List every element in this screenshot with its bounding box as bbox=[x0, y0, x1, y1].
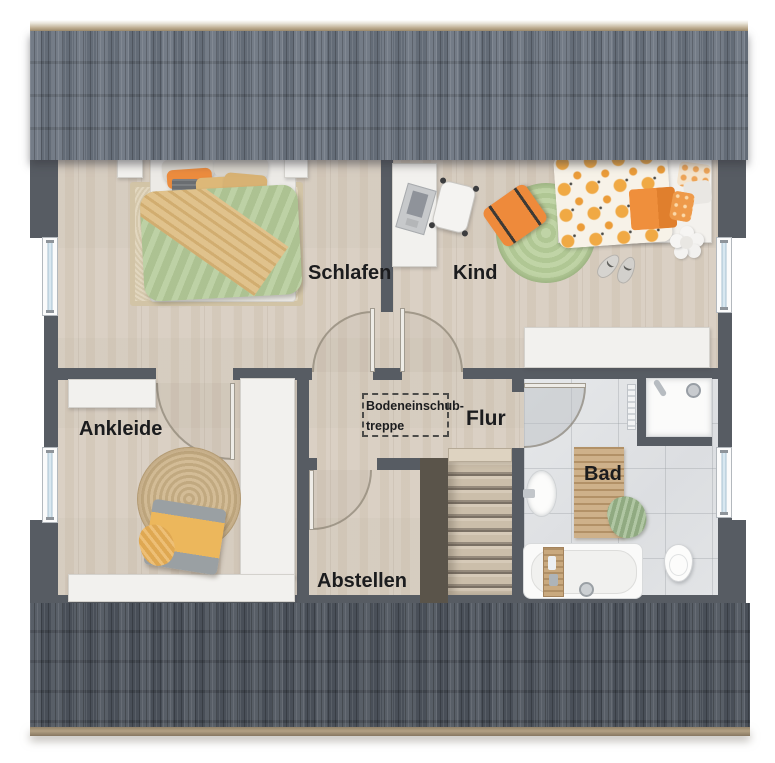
toilet-seat-line bbox=[669, 554, 688, 576]
window-tick bbox=[720, 450, 728, 453]
window-glass bbox=[722, 451, 727, 514]
door-leaf-kind bbox=[400, 308, 405, 372]
laptop-screen bbox=[406, 190, 428, 217]
attic-stairs-annotation: Bodeneinschub- treppe bbox=[366, 396, 464, 436]
flower-stool bbox=[670, 226, 704, 259]
exterior-wall-right bbox=[718, 158, 732, 603]
window-tick bbox=[46, 517, 54, 520]
flower-center bbox=[680, 236, 693, 249]
floorplan-upper-floor: Schlafen Kind Ankleide Flur Abstellen Ba… bbox=[0, 0, 775, 763]
window-schlafen bbox=[42, 237, 58, 316]
window-bad bbox=[716, 447, 732, 518]
sink-faucet bbox=[523, 489, 535, 498]
bathtub bbox=[523, 543, 643, 599]
door-leaf-schlafen bbox=[370, 308, 375, 372]
room-label-flur: Flur bbox=[466, 407, 506, 431]
roof-upper bbox=[30, 31, 748, 160]
wardrobe-top bbox=[68, 379, 156, 408]
shower-wall-bottom bbox=[637, 437, 712, 446]
roof-ridge-top bbox=[30, 20, 748, 31]
ankleide-right-wall bbox=[297, 380, 309, 603]
window-glass bbox=[722, 241, 727, 309]
nightstand-right bbox=[284, 157, 308, 178]
exterior-wall-left bbox=[44, 158, 58, 603]
room-label-bad: Bad bbox=[584, 463, 622, 486]
wardrobe-bottom bbox=[68, 574, 295, 602]
window-ankleide bbox=[42, 447, 58, 523]
mid-wall-segment-3 bbox=[373, 368, 402, 380]
room-label-kind: Kind bbox=[453, 262, 497, 285]
bath-caddy bbox=[543, 547, 564, 597]
roof-edge-bottom bbox=[30, 727, 750, 736]
door-leaf-ankleide bbox=[230, 383, 235, 460]
nightstand-left bbox=[117, 157, 143, 178]
wardrobe-tall-right bbox=[240, 378, 295, 578]
window-glass bbox=[48, 451, 53, 519]
window-tick bbox=[46, 310, 54, 313]
room-label-schlafen: Schlafen bbox=[308, 262, 391, 285]
window-glass bbox=[48, 241, 53, 312]
chair-caster bbox=[439, 177, 446, 184]
window-tick bbox=[46, 240, 54, 243]
slipper-strap bbox=[605, 257, 617, 269]
window-tick bbox=[720, 307, 728, 310]
shower-wall-left bbox=[637, 374, 646, 444]
duvet-green bbox=[139, 184, 303, 302]
bathtub-faucet bbox=[579, 582, 594, 597]
door-leaf-bad bbox=[524, 383, 586, 388]
caddy-bottle bbox=[549, 574, 558, 586]
window-tick bbox=[720, 240, 728, 243]
window-kind bbox=[716, 237, 732, 313]
exterior-wall-left-eave-bottom bbox=[30, 520, 44, 603]
towel-radiator bbox=[627, 384, 636, 430]
bathroom-sink bbox=[526, 470, 557, 517]
door-leaf-abstellen bbox=[309, 470, 314, 530]
kids-sideboard bbox=[524, 327, 710, 368]
attic-stairs-annotation-line2: treppe bbox=[366, 416, 464, 436]
attic-stairs-annotation-line1: Bodeneinschub- bbox=[366, 396, 464, 416]
shower-head bbox=[686, 383, 701, 398]
stair-landing-step bbox=[448, 448, 512, 462]
staircase bbox=[448, 462, 512, 595]
window-tick bbox=[46, 450, 54, 453]
room-label-ankleide: Ankleide bbox=[79, 418, 162, 441]
duvet-tan-band bbox=[139, 184, 288, 296]
exterior-wall-right-eave-bottom bbox=[732, 520, 746, 603]
abstellen-top-wall-a bbox=[309, 458, 317, 470]
room-label-abstellen: Abstellen bbox=[317, 570, 407, 593]
stairwell-wall bbox=[420, 458, 448, 603]
roof-lower bbox=[30, 603, 750, 727]
exterior-wall-right-eave-top bbox=[732, 158, 746, 238]
window-tick bbox=[720, 512, 728, 515]
abstellen-top-wall-b bbox=[377, 458, 420, 470]
exterior-wall-left-eave-top bbox=[30, 158, 44, 238]
slipper-strap bbox=[622, 261, 633, 272]
caddy-bottle bbox=[548, 556, 556, 570]
laptop-keyboard bbox=[405, 218, 418, 228]
bad-left-wall-a bbox=[512, 378, 524, 392]
